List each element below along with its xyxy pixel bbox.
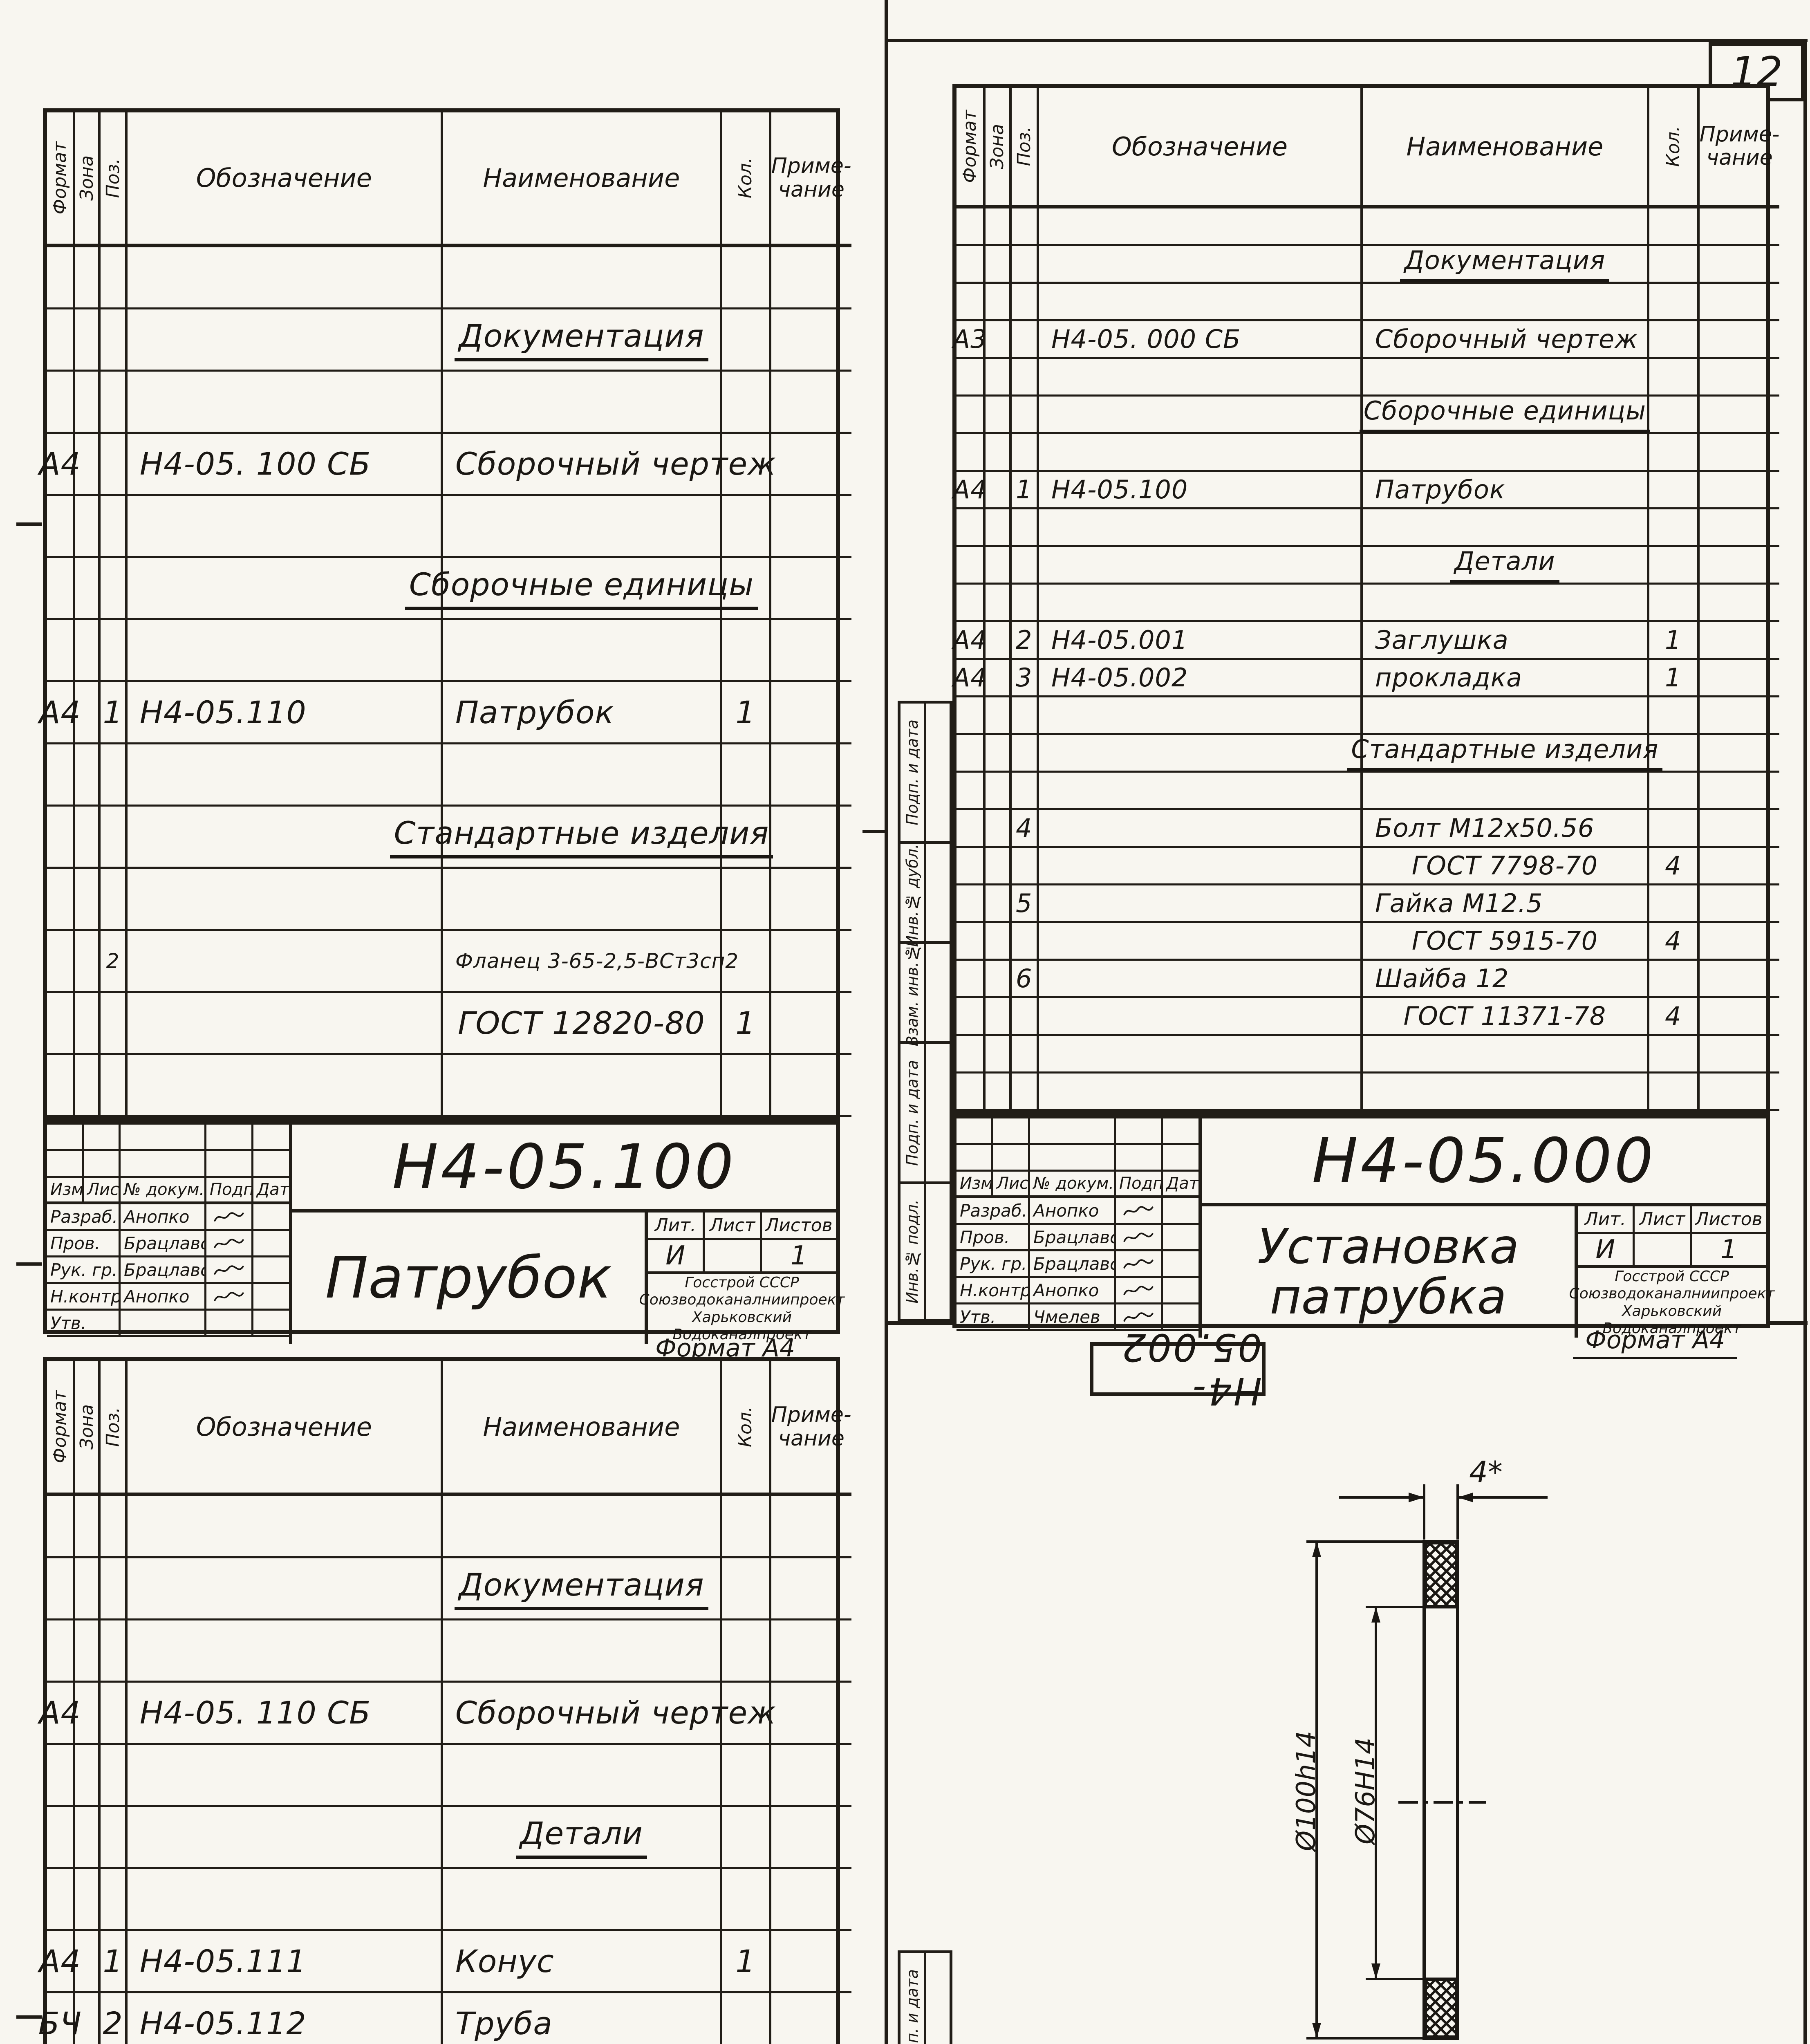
spec-cell: Документация <box>443 1558 722 1620</box>
spec-cell: Труба <box>443 1993 722 2044</box>
sign-date <box>253 1311 289 1337</box>
side-stamp-blank <box>926 944 950 1046</box>
spec-cell <box>771 1869 851 1931</box>
spec-cell <box>75 1683 101 1745</box>
spec-cell <box>722 1993 771 2044</box>
spec-cell <box>986 397 1011 434</box>
spec-cell <box>1039 397 1363 434</box>
spec-cell <box>128 1496 443 1558</box>
spec-cell <box>101 1745 128 1807</box>
spec-cell: А3 <box>957 321 986 359</box>
signature-scribble <box>213 1236 245 1250</box>
spec-cell <box>101 1558 128 1620</box>
spec-cell <box>1363 585 1649 622</box>
sign-row: Пров.Брацлавский <box>957 1225 1198 1251</box>
lit-value: И <box>648 1240 705 1271</box>
spec-cell <box>1700 998 1780 1036</box>
sign-role: Разраб. <box>957 1198 1030 1225</box>
spec-cell <box>101 1496 128 1558</box>
spec-cell: 1 <box>722 993 771 1055</box>
spec-cell <box>986 660 1011 697</box>
spec-cell <box>1700 810 1780 848</box>
empty-cell <box>47 1151 84 1178</box>
sign-date <box>253 1257 289 1284</box>
spec-cell <box>443 1745 722 1807</box>
sign-col-header: Подп. <box>206 1178 253 1204</box>
lit-grid: Лит. Лист Листов И 1 <box>1578 1206 1766 1268</box>
spec-cell: Документация <box>1363 246 1649 284</box>
spec-cell: Сборочный чертеж <box>443 434 722 496</box>
spec-cell <box>1039 810 1363 848</box>
empty-cell <box>1163 1118 1198 1145</box>
empty-cell <box>957 1118 993 1145</box>
dim-outer-label: Ø100h14 <box>1290 1709 1323 1873</box>
spec-cell: А4 <box>957 622 986 660</box>
sign-row <box>957 1145 1198 1172</box>
spec-cell <box>771 1931 851 1993</box>
spec-cell <box>101 247 128 309</box>
col-header-qty: Кол. <box>722 1361 771 1496</box>
side-stamp-blank <box>926 704 950 841</box>
sign-row: Рук. гр.Брацлавский <box>957 1251 1198 1278</box>
side-stamp-cell: Инв.№ дубл. <box>898 841 952 941</box>
spec-cell <box>957 735 986 773</box>
right-edge-frame-line <box>1803 39 1807 2044</box>
spec-cell <box>443 1869 722 1931</box>
spec-cell <box>47 309 75 372</box>
spec-cell <box>771 931 851 993</box>
document-title: Патрубок <box>292 1213 648 1344</box>
sign-name: Анопко <box>1030 1198 1116 1225</box>
spec-cell <box>128 496 443 558</box>
text-line: Союзводоканалниипроект <box>1569 1285 1775 1302</box>
spec-cell <box>957 1036 986 1074</box>
spec-cell <box>722 1683 771 1745</box>
spec-cell <box>47 1558 75 1620</box>
spec-cell: Н4-05.112 <box>128 1993 443 2044</box>
document-number: Н4-05.000 <box>1202 1118 1766 1206</box>
empty-cell <box>1116 1118 1163 1145</box>
empty-cell <box>957 1145 993 1172</box>
spec-cell: прокладка <box>1363 660 1649 697</box>
spec-cell <box>957 509 986 547</box>
spec-cell <box>986 509 1011 547</box>
margin-tick <box>862 830 885 833</box>
spec-cell <box>47 1869 75 1931</box>
spec-cell <box>443 620 722 682</box>
sign-col-header: Изм. <box>957 1172 993 1198</box>
spec-cell <box>1363 284 1649 321</box>
spec-cell <box>47 744 75 807</box>
spec-cell <box>771 309 851 372</box>
spec-cell <box>957 246 986 284</box>
spec-cell <box>1700 773 1780 810</box>
spec-cell <box>443 869 722 931</box>
spec-cell <box>771 496 851 558</box>
sheet-spec-n4-05-100: ФорматЗонаПоз.ОбозначениеНаименованиеКол… <box>43 108 840 1330</box>
spec-cell <box>75 1931 101 1993</box>
list-value <box>705 1240 762 1271</box>
spec-cell <box>1649 509 1700 547</box>
sign-col-header: № докум. <box>121 1178 206 1204</box>
spec-cell <box>128 309 443 372</box>
spec-cell: Шайба 12 <box>1363 961 1649 998</box>
spec-cell <box>443 1620 722 1683</box>
spec-cell: 4 <box>1649 998 1700 1036</box>
spec-cell <box>128 1055 443 1117</box>
spec-cell <box>1649 697 1700 735</box>
section-hatch-bottom <box>1424 1978 1458 2038</box>
spec-cell <box>1649 735 1700 773</box>
empty-cell <box>206 1125 253 1151</box>
sign-name: Брацлавский <box>1030 1251 1116 1278</box>
signature-table: Изм.Лист№ докум.Подп.ДатаРазраб.АнопкоПр… <box>47 1125 292 1344</box>
sign-col-header: Дата <box>253 1178 289 1204</box>
spec-cell <box>47 558 75 620</box>
lit-label: Лит. <box>1578 1206 1635 1234</box>
spec-cell: Гайка М12.5 <box>1363 885 1649 923</box>
spec-cell <box>75 993 101 1055</box>
spec-cell <box>957 923 986 961</box>
sign-role: Н.контр. <box>47 1284 121 1311</box>
spec-cell <box>1649 773 1700 810</box>
spec-cell <box>75 682 101 744</box>
spec-cell: 4 <box>1012 810 1039 848</box>
signature-scribble <box>1122 1283 1154 1297</box>
spec-cell <box>128 558 443 620</box>
spec-cell <box>1012 359 1039 397</box>
spec-cell <box>101 372 128 434</box>
sign-role: Утв. <box>47 1311 121 1337</box>
spec-cell: Сборочные единицы <box>1363 397 1649 434</box>
spec-cell <box>75 372 101 434</box>
spec-cell <box>1039 1036 1363 1074</box>
text-line: Союзводоканалниипроект <box>639 1291 845 1309</box>
listov-value: 1 <box>1692 1234 1766 1265</box>
col-header-note: Приме-чание <box>771 1361 851 1496</box>
spec-cell <box>1039 773 1363 810</box>
spec-cell <box>1012 208 1039 246</box>
side-stamp-blank <box>926 1184 950 1319</box>
spec-cell <box>722 1620 771 1683</box>
sign-name: Анопко <box>121 1284 206 1311</box>
spec-cell <box>47 372 75 434</box>
spec-cell <box>75 1558 101 1620</box>
spec-cell <box>722 434 771 496</box>
spec-cell <box>1649 1074 1700 1111</box>
spec-table: ФорматЗонаПоз.ОбозначениеНаименованиеКол… <box>43 108 840 1121</box>
listov-label: Листов <box>1692 1206 1766 1234</box>
spec-cell <box>722 1496 771 1558</box>
spec-cell <box>986 585 1011 622</box>
spec-cell <box>986 1074 1011 1111</box>
col-header-zone: Зона <box>986 88 1011 208</box>
title-block-right: Лит. Лист Листов И 1 Госстрой СССРСоюзво… <box>648 1213 836 1344</box>
spec-cell: Н4-05.110 <box>128 682 443 744</box>
col-header-qty: Кол. <box>722 112 771 247</box>
empty-cell <box>1030 1118 1116 1145</box>
spec-cell: Н4-05.111 <box>128 1931 443 1993</box>
signature-scribble <box>1122 1230 1154 1244</box>
side-stamp-cell: Инв.№ подл. <box>898 1181 952 1322</box>
empty-cell <box>253 1125 289 1151</box>
spec-cell <box>771 1993 851 2044</box>
spec-cell <box>75 496 101 558</box>
sign-row: Изм.Лист№ докум.Подп.Дата <box>957 1172 1198 1198</box>
col-header-pos: Поз. <box>101 1361 128 1496</box>
spec-cell <box>986 961 1011 998</box>
spec-cell <box>75 1496 101 1558</box>
spec-cell <box>986 1036 1011 1074</box>
spec-cell: А4 <box>47 682 75 744</box>
spec-cell <box>1649 284 1700 321</box>
spec-cell <box>1039 848 1363 885</box>
spec-cell <box>1649 1036 1700 1074</box>
spec-cell: Н4-05. 000 СБ <box>1039 321 1363 359</box>
sign-row: Утв. <box>47 1311 289 1337</box>
spec-cell <box>957 773 986 810</box>
spec-cell <box>47 247 75 309</box>
spec-cell <box>75 744 101 807</box>
spec-cell <box>101 869 128 931</box>
spec-cell <box>128 1745 443 1807</box>
sign-date <box>253 1231 289 1257</box>
text-line: Госстрой СССР <box>1615 1268 1729 1285</box>
spec-cell <box>101 1869 128 1931</box>
spec-cell <box>1012 321 1039 359</box>
spec-cell: Сборочные единицы <box>443 558 722 620</box>
scanned-specification-page: 12 ФорматЗонаПоз.ОбозначениеНаименование… <box>0 0 1810 2044</box>
spec-cell <box>1012 1036 1039 1074</box>
list-label: Лист <box>705 1213 762 1240</box>
spec-cell: 3 <box>1012 660 1039 697</box>
spec-cell <box>771 1683 851 1745</box>
spec-cell <box>1363 509 1649 547</box>
sign-name: Брацлавский <box>1030 1225 1116 1251</box>
spec-cell: 4 <box>1649 923 1700 961</box>
section-hatch-top <box>1424 1542 1458 1608</box>
spec-cell <box>986 321 1011 359</box>
title-block-right: Лит. Лист Листов И 1 Госстрой СССРСоюзво… <box>1578 1206 1766 1338</box>
spec-cell <box>101 496 128 558</box>
spec-cell <box>128 931 443 993</box>
col-header-note: Приме-чание <box>1700 88 1780 208</box>
col-header-name: Наименование <box>1363 88 1649 208</box>
side-stamp-label: Взам. инв.№ <box>901 944 926 1046</box>
spec-cell <box>47 1807 75 1869</box>
spec-cell <box>75 558 101 620</box>
spec-cell <box>101 744 128 807</box>
spec-cell <box>771 372 851 434</box>
spec-cell <box>1012 773 1039 810</box>
spec-cell <box>957 1074 986 1111</box>
spec-cell <box>75 807 101 869</box>
col-header-pos: Поз. <box>101 112 128 247</box>
spec-cell <box>101 558 128 620</box>
spec-cell <box>722 496 771 558</box>
spec-cell <box>1649 434 1700 472</box>
spec-cell <box>957 397 986 434</box>
spec-cell <box>722 744 771 807</box>
col-header-name: Наименование <box>443 112 722 247</box>
col-header-pos: Поз. <box>1012 88 1039 208</box>
empty-cell <box>206 1151 253 1178</box>
spec-cell <box>1700 472 1780 509</box>
spec-cell <box>771 1620 851 1683</box>
spec-cell <box>722 1869 771 1931</box>
signature-scribble <box>1122 1257 1154 1271</box>
sign-col-header: Лист <box>84 1178 121 1204</box>
spec-cell <box>128 744 443 807</box>
spec-cell <box>1649 359 1700 397</box>
sign-name <box>121 1311 206 1337</box>
side-stamp-cell: Подп. и дата <box>898 701 952 841</box>
spec-cell <box>986 697 1011 735</box>
sign-col-header: Дата <box>1163 1172 1198 1198</box>
spec-cell <box>1649 810 1700 848</box>
spec-cell <box>75 931 101 993</box>
spec-cell <box>1363 434 1649 472</box>
spec-cell: 5 <box>1012 885 1039 923</box>
side-stamp-cell: Взам. инв.№ <box>898 941 952 1041</box>
spec-cell: Н4-05.002 <box>1039 660 1363 697</box>
sign-signature <box>1116 1198 1163 1225</box>
listov-label: Листов <box>762 1213 836 1240</box>
empty-cell <box>993 1145 1030 1172</box>
spec-cell <box>1012 697 1039 735</box>
spec-cell <box>1363 1074 1649 1111</box>
spec-cell <box>1363 1036 1649 1074</box>
spec-cell: Стандартные изделия <box>1363 735 1649 773</box>
spec-cell <box>722 558 771 620</box>
spec-cell <box>986 998 1011 1036</box>
spec-cell: Детали <box>443 1807 722 1869</box>
col-header-name: Наименование <box>443 1361 722 1496</box>
side-stamp-cell: Подп. и дата <box>898 1041 952 1181</box>
spec-cell <box>771 993 851 1055</box>
side-stamp-cell: Подп. и дата <box>898 1950 952 2044</box>
spec-cell <box>75 1745 101 1807</box>
empty-cell <box>1163 1145 1198 1172</box>
spec-cell <box>1700 1074 1780 1111</box>
spec-cell <box>771 682 851 744</box>
sign-col-header: Изм. <box>47 1178 84 1204</box>
spec-cell <box>443 372 722 434</box>
spec-cell: А4 <box>47 1683 75 1745</box>
spec-cell <box>75 1993 101 2044</box>
spec-cell <box>1039 885 1363 923</box>
inverted-doc-stamp: Н4-05.002 <box>1090 1342 1266 1396</box>
spec-cell <box>47 1620 75 1683</box>
spec-cell <box>957 585 986 622</box>
signature-scribble <box>213 1210 245 1224</box>
empty-cell <box>1116 1145 1163 1172</box>
signature-scribble <box>1122 1204 1154 1217</box>
spec-cell <box>986 284 1011 321</box>
spec-cell: Патрубок <box>443 682 722 744</box>
spec-cell <box>101 1683 128 1745</box>
spec-cell <box>957 961 986 998</box>
sign-row: Н.контр.Анопко <box>957 1278 1198 1304</box>
sign-role: Пров. <box>47 1231 121 1257</box>
col-header-designation: Обозначение <box>128 1361 443 1496</box>
spec-cell <box>101 434 128 496</box>
sign-row: Н.контр.Анопко <box>47 1284 289 1311</box>
spec-cell <box>771 807 851 869</box>
sheet-drawing-n4-05-002: Подп. и датаИнв.№ дубл.Взам. инв.№Подп. … <box>898 1325 1770 2044</box>
spec-cell <box>75 620 101 682</box>
spec-cell <box>986 208 1011 246</box>
spec-table: ФорматЗонаПоз.ОбозначениеНаименованиеКол… <box>43 1357 840 2044</box>
side-stamp-column: Подп. и датаИнв.№ дубл.Взам. инв.№Подп. … <box>898 701 952 1322</box>
sign-date <box>1163 1225 1198 1251</box>
spec-cell: 1 <box>1649 622 1700 660</box>
inverted-doc-number: Н4-05.002 <box>1093 1325 1262 1413</box>
spec-cell <box>1700 321 1780 359</box>
spec-cell: Н4-05. 100 СБ <box>128 434 443 496</box>
spec-cell <box>1700 284 1780 321</box>
spec-cell <box>1700 434 1780 472</box>
spec-cell <box>771 558 851 620</box>
spec-cell <box>771 869 851 931</box>
lit-grid: Лит. Лист Листов И 1 <box>648 1213 836 1274</box>
spec-cell <box>128 620 443 682</box>
spec-cell <box>722 620 771 682</box>
spec-cell: ГОСТ 5915-70 <box>1363 923 1649 961</box>
spec-cell <box>771 247 851 309</box>
spec-cell <box>1700 697 1780 735</box>
spec-cell <box>986 622 1011 660</box>
list-value <box>1635 1234 1691 1265</box>
spec-cell <box>722 1055 771 1117</box>
title-block: Изм.Лист№ докум.Подп.ДатаРазраб.АнопкоПр… <box>43 1121 840 1334</box>
listov-value: 1 <box>762 1240 836 1271</box>
spec-cell <box>1700 509 1780 547</box>
spec-cell <box>1012 246 1039 284</box>
spec-cell: 1 <box>1012 472 1039 509</box>
spec-cell <box>1700 735 1780 773</box>
sign-row: Разраб.Анопко <box>47 1204 289 1231</box>
spec-cell: 1 <box>722 682 771 744</box>
spec-cell <box>1012 735 1039 773</box>
spec-cell <box>1700 885 1780 923</box>
sign-date <box>1163 1278 1198 1304</box>
spec-cell <box>957 547 986 585</box>
spec-cell: Стандартные изделия <box>443 807 722 869</box>
sign-signature <box>206 1257 253 1284</box>
sign-row <box>957 1118 1198 1145</box>
spec-cell <box>1700 1036 1780 1074</box>
spec-cell <box>722 931 771 993</box>
spec-cell <box>75 247 101 309</box>
spec-cell <box>771 1496 851 1558</box>
spec-cell <box>101 309 128 372</box>
spec-cell: Сборочный чертеж <box>1363 321 1649 359</box>
spec-cell <box>128 1620 443 1683</box>
spec-cell <box>1700 246 1780 284</box>
sign-col-header: Подп. <box>1116 1172 1163 1198</box>
sign-signature <box>1116 1251 1163 1278</box>
spec-cell <box>722 807 771 869</box>
side-stamp-label: Инв.№ дубл. <box>901 844 926 947</box>
spec-cell: Болт М12х50.56 <box>1363 810 1649 848</box>
spec-cell: Фланец 3-65-2,5-ВСт3сп2 <box>443 931 722 993</box>
sign-signature <box>206 1311 253 1337</box>
spec-cell <box>1700 397 1780 434</box>
spec-cell <box>986 923 1011 961</box>
list-label: Лист <box>1635 1206 1691 1234</box>
spec-cell <box>1012 848 1039 885</box>
